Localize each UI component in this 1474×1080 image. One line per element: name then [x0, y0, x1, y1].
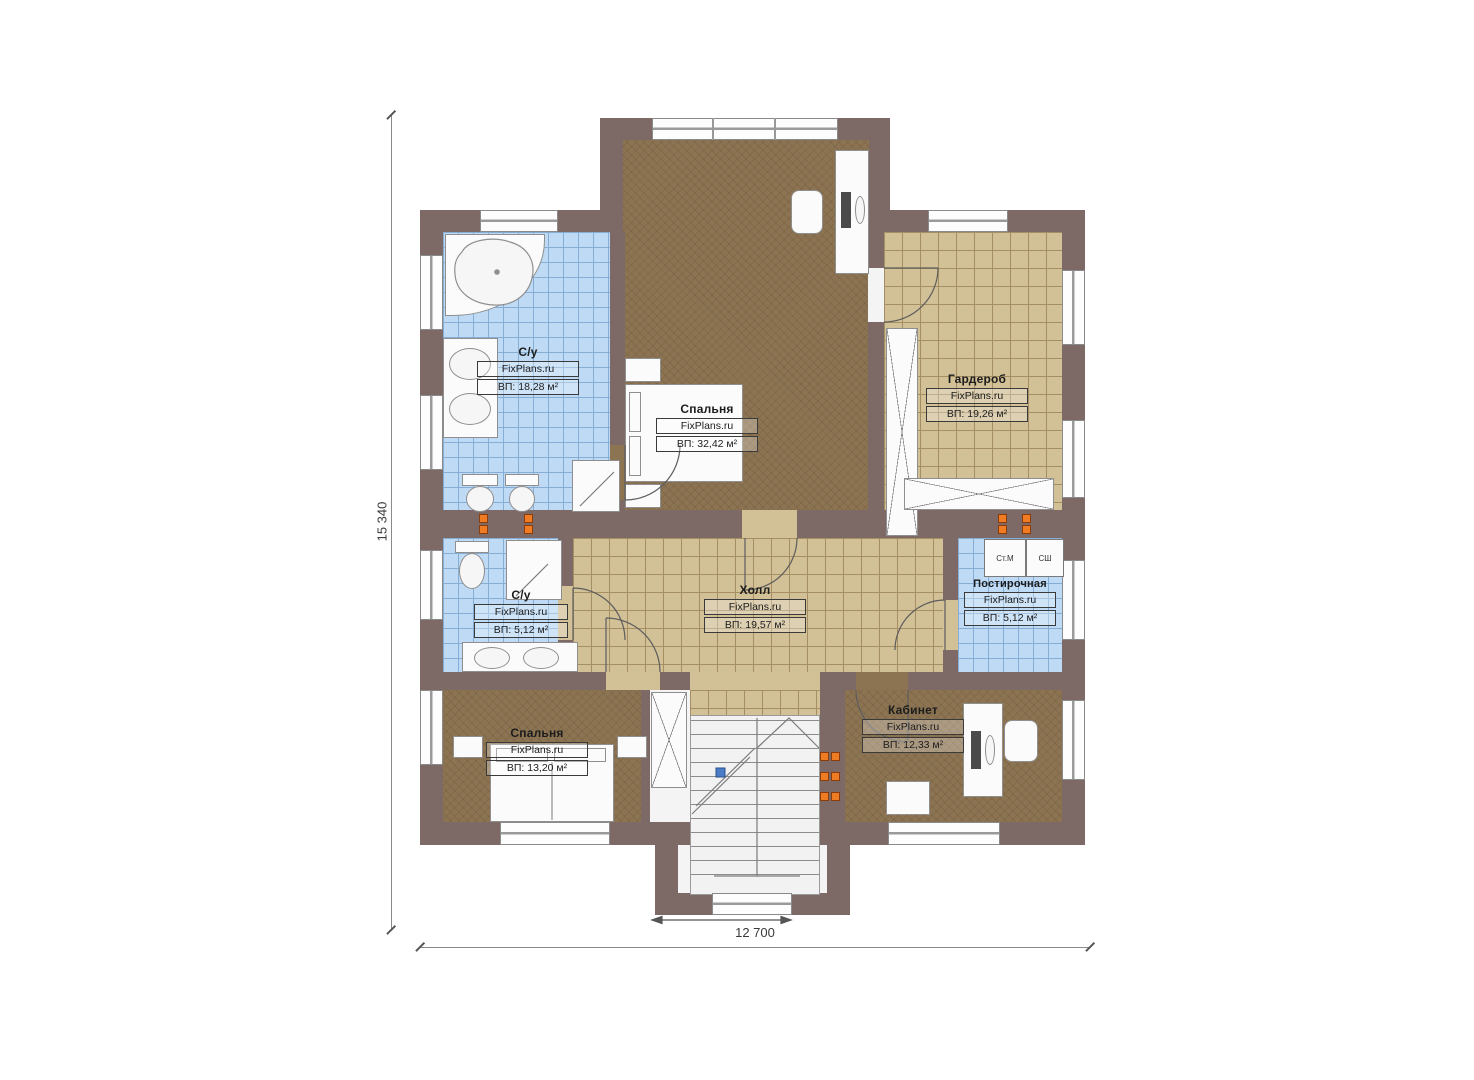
- window-top-1: [480, 210, 558, 232]
- door-opening-bedroom-second: [606, 672, 660, 690]
- window-right-1: [1062, 270, 1085, 345]
- room-area: ВП: 32,42 м²: [656, 436, 758, 452]
- room-name: Гардероб: [917, 372, 1037, 386]
- room-brand: FixPlans.ru: [486, 742, 588, 758]
- office-chair: [1004, 720, 1038, 762]
- horizontal-dimension-line: [420, 947, 1090, 948]
- room-brand: FixPlans.ru: [656, 418, 758, 434]
- pillow: [629, 436, 641, 476]
- keyboard: [985, 735, 995, 765]
- power-outlet: [1022, 514, 1031, 534]
- room-area: ВП: 12,33 м²: [862, 737, 964, 753]
- closet-cabinet-stairs: [651, 692, 687, 788]
- room-brand: FixPlans.ru: [477, 361, 579, 377]
- room-label-bathroom-small: С/у FixPlans.ru ВП: 5,12 м²: [465, 588, 577, 638]
- room-brand: FixPlans.ru: [964, 592, 1056, 608]
- room-name: Кабинет: [853, 703, 973, 717]
- pillow: [629, 392, 641, 432]
- nightstand: [625, 484, 661, 508]
- room-name: С/у: [468, 345, 588, 359]
- sink-basin: [474, 647, 510, 669]
- room-brand: FixPlans.ru: [862, 719, 964, 735]
- room-name: Спальня: [645, 402, 769, 416]
- bidet-tank: [505, 474, 539, 486]
- toilet-tank: [462, 474, 498, 486]
- room-name: С/у: [465, 588, 577, 602]
- window-left-3: [420, 550, 443, 620]
- bidet-bowl: [509, 486, 535, 512]
- window-right-3: [1062, 560, 1085, 640]
- room-label-bedroom-master: Спальня FixPlans.ru ВП: 32,42 м²: [645, 402, 769, 452]
- room-area: ВП: 13,20 м²: [486, 760, 588, 776]
- window-left-2: [420, 395, 443, 470]
- sink-basin: [449, 393, 491, 425]
- room-name: Спальня: [477, 726, 597, 740]
- window-protrusion: [652, 118, 838, 140]
- window-mullion: [712, 118, 714, 140]
- dryer-label: СШ: [1038, 554, 1051, 563]
- door-opening-office: [856, 672, 908, 690]
- room-area: ВП: 18,28 м²: [477, 379, 579, 395]
- window-top-2: [928, 210, 1008, 232]
- toilet-bowl: [459, 553, 485, 589]
- keyboard: [855, 196, 865, 224]
- door-opening-wardrobe: [868, 268, 884, 322]
- washing-machine-label: Ст.М: [996, 554, 1013, 563]
- sink-basin: [523, 647, 559, 669]
- height-dimension-label: 15 340: [375, 482, 390, 562]
- window-left-1: [420, 255, 443, 330]
- power-outlet: [524, 514, 533, 534]
- room-brand: FixPlans.ru: [926, 388, 1028, 404]
- window-bay: [712, 893, 792, 915]
- power-outlet: [479, 514, 488, 534]
- office-chair: [791, 190, 823, 234]
- nightstand: [617, 736, 647, 758]
- window-bottom-1: [500, 822, 610, 845]
- shower-top-bathroom: [572, 460, 620, 512]
- window-left-4: [420, 690, 443, 765]
- window-bottom-2: [888, 822, 1000, 845]
- staircase: [690, 715, 820, 895]
- floor-plan-canvas: 15 340 12 700: [0, 0, 1474, 1080]
- room-area: ВП: 5,12 м²: [964, 610, 1056, 626]
- bay-dimension-arrow: [652, 917, 791, 924]
- room-label-bedroom-second: Спальня FixPlans.ru ВП: 13,20 м²: [477, 726, 597, 776]
- window-mullion: [774, 118, 776, 140]
- room-label-wardrobe: Гардероб FixPlans.ru ВП: 19,26 м²: [917, 372, 1037, 422]
- room-brand: FixPlans.ru: [704, 599, 806, 615]
- room-label-hall: Холл FixPlans.ru ВП: 19,57 м²: [695, 583, 815, 633]
- room-label-laundry: Постирочная FixPlans.ru ВП: 5,12 м²: [955, 578, 1065, 626]
- window-right-4: [1062, 700, 1085, 780]
- power-outlet: [998, 514, 1007, 534]
- opening-hall-stairs: [690, 672, 820, 690]
- power-outlet: [820, 752, 840, 761]
- door-opening-bedroom-hall: [742, 510, 797, 538]
- power-outlet: [820, 772, 840, 781]
- window-right-2: [1062, 420, 1085, 498]
- wardrobe-cabinet-bottom: [904, 478, 1054, 510]
- power-outlet: [820, 792, 840, 801]
- room-area: ВП: 19,26 м²: [926, 406, 1028, 422]
- room-brand: FixPlans.ru: [474, 604, 568, 620]
- vertical-dimension-line: [391, 115, 392, 930]
- toilet-tank: [455, 541, 489, 553]
- stair-treads: [691, 720, 819, 880]
- room-label-bathroom-top: С/у FixPlans.ru ВП: 18,28 м²: [468, 345, 588, 395]
- toilet-bowl: [466, 486, 494, 512]
- side-table: [886, 781, 930, 815]
- nightstand: [625, 358, 661, 382]
- room-area: ВП: 5,12 м²: [474, 622, 568, 638]
- washing-machine: Ст.М: [984, 539, 1026, 577]
- room-label-office: Кабинет FixPlans.ru ВП: 12,33 м²: [853, 703, 973, 753]
- computer-monitor: [841, 192, 851, 228]
- room-name: Холл: [695, 583, 815, 597]
- width-dimension-label: 12 700: [700, 925, 810, 940]
- room-name: Постирочная: [955, 578, 1065, 590]
- room-area: ВП: 19,57 м²: [704, 617, 806, 633]
- dryer: СШ: [1026, 539, 1064, 577]
